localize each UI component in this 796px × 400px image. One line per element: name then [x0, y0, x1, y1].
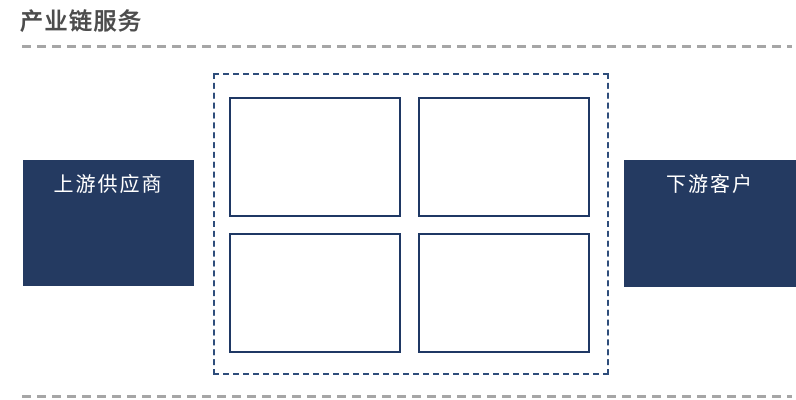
upstream-supplier-node: 上游供应商 — [23, 160, 194, 286]
downstream-customer-label: 下游客户 — [666, 174, 754, 196]
industry-chain-diagram: 产业链服务 上游供应商 下游客户 — [0, 0, 796, 400]
chain-services-dashed-container — [213, 73, 609, 375]
page-title: 产业链服务 — [20, 9, 143, 35]
service-box-top-left — [229, 97, 401, 217]
header-divider-dashed — [22, 45, 792, 48]
upstream-supplier-label: 上游供应商 — [54, 174, 164, 196]
service-box-top-right — [418, 97, 590, 217]
service-box-bottom-right — [418, 233, 590, 353]
service-box-bottom-left — [229, 233, 401, 353]
footer-divider-dashed — [22, 395, 792, 398]
downstream-customer-node: 下游客户 — [624, 160, 796, 287]
